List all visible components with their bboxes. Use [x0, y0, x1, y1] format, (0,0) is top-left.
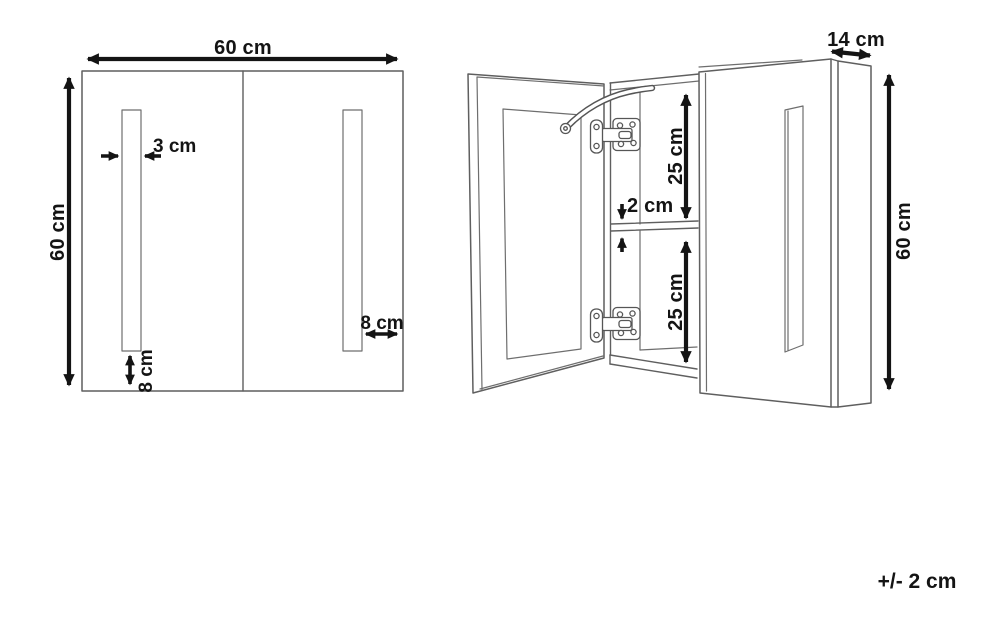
shelf-top-edge	[611, 221, 698, 224]
hinge-slot	[619, 321, 631, 328]
front-view: 60 cm 60 cm 3 cm 8 cm 8 cm	[47, 37, 404, 393]
dimension-open-height: 60 cm	[889, 75, 915, 389]
floor-back-edge	[640, 347, 697, 350]
shelf-bottom-edge	[611, 228, 698, 231]
upper-compartment-label: 25 cm	[665, 127, 687, 185]
closed-door	[699, 59, 831, 407]
dimension-front-height: 60 cm	[47, 78, 69, 385]
shelf-thickness-label: 2 cm	[627, 195, 673, 217]
closed-door-face	[699, 59, 831, 407]
hinge-screw	[618, 330, 623, 335]
depth-label: 14 cm	[827, 29, 885, 51]
hinge-screw	[630, 122, 635, 127]
hinge-slot	[619, 132, 631, 139]
tolerance-note: +/- 2 cm	[878, 570, 957, 593]
open-door	[468, 74, 604, 393]
hinge-screw	[594, 313, 599, 318]
hinge-screw	[594, 332, 599, 337]
dimension-depth: 14 cm	[827, 29, 885, 56]
hinge-top	[591, 119, 641, 154]
hinge-screw	[631, 140, 636, 145]
dimension-strip-side-offset: 8 cm	[360, 313, 403, 334]
hinge-screw	[630, 311, 635, 316]
side-panel-face	[838, 61, 871, 407]
side-panel	[831, 59, 871, 407]
top-corner-edge	[831, 59, 838, 61]
depth-arrow	[832, 52, 870, 56]
cable-connector-pin	[564, 127, 568, 131]
lower-compartment-label: 25 cm	[665, 273, 687, 331]
strip-side-offset-label: 8 cm	[360, 313, 403, 334]
open-door-outline	[468, 74, 604, 393]
front-width-label: 60 cm	[214, 37, 272, 59]
hinge-screw	[617, 312, 622, 317]
open-height-label: 60 cm	[893, 202, 915, 260]
technical-drawing: 60 cm 60 cm 3 cm 8 cm 8 cm	[0, 0, 987, 619]
hinge-screw	[594, 143, 599, 148]
hinge-bottom	[591, 308, 641, 343]
hinge-screw	[617, 123, 622, 128]
dimension-front-width: 60 cm	[88, 37, 397, 59]
hinge-screw	[631, 329, 636, 334]
hinge-screw	[594, 124, 599, 129]
open-view: 14 cm 60 cm 25 cm 2 cm 25 cm	[468, 29, 915, 407]
top-panel-front-edge	[610, 74, 699, 83]
dimension-lower-compartment: 25 cm	[665, 242, 687, 362]
floor-front-bottom-edge	[610, 364, 697, 378]
strip-width-label: 3 cm	[153, 136, 196, 157]
dimension-drawing-page: 60 cm 60 cm 3 cm 8 cm 8 cm	[0, 0, 987, 619]
hinge-screw	[618, 141, 623, 146]
front-height-label: 60 cm	[47, 203, 69, 261]
strip-bottom-offset-label: 8 cm	[136, 349, 157, 392]
